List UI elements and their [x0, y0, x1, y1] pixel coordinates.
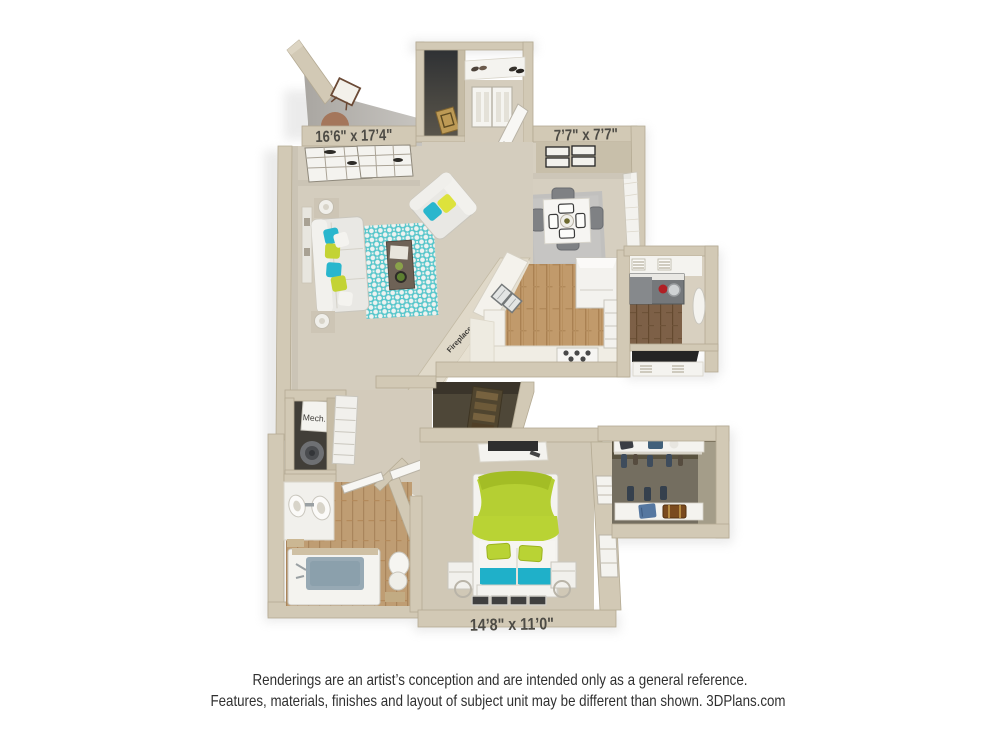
svg-text:Mech.: Mech.	[303, 412, 327, 424]
svg-text:7’7" x 7’7": 7’7" x 7’7"	[554, 126, 618, 145]
svg-text:14’8" x 11’0": 14’8" x 11’0"	[470, 614, 554, 634]
svg-text:Features, materials, finishes: Features, materials, finishes and layout…	[211, 693, 786, 710]
svg-text:16’6" x 17’4": 16’6" x 17’4"	[315, 127, 392, 146]
svg-text:Renderings are an artist’s con: Renderings are an artist’s conception an…	[253, 672, 748, 689]
